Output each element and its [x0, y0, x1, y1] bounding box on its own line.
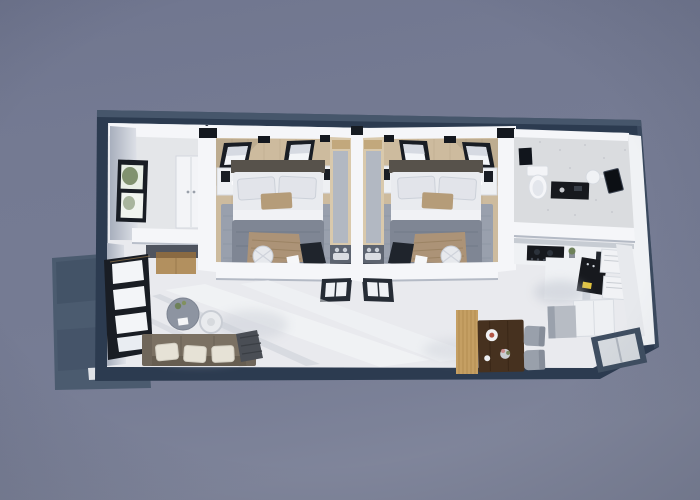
floorplan-render-stage [0, 0, 700, 500]
vignette [0, 0, 700, 500]
floorplan-render [0, 0, 700, 500]
